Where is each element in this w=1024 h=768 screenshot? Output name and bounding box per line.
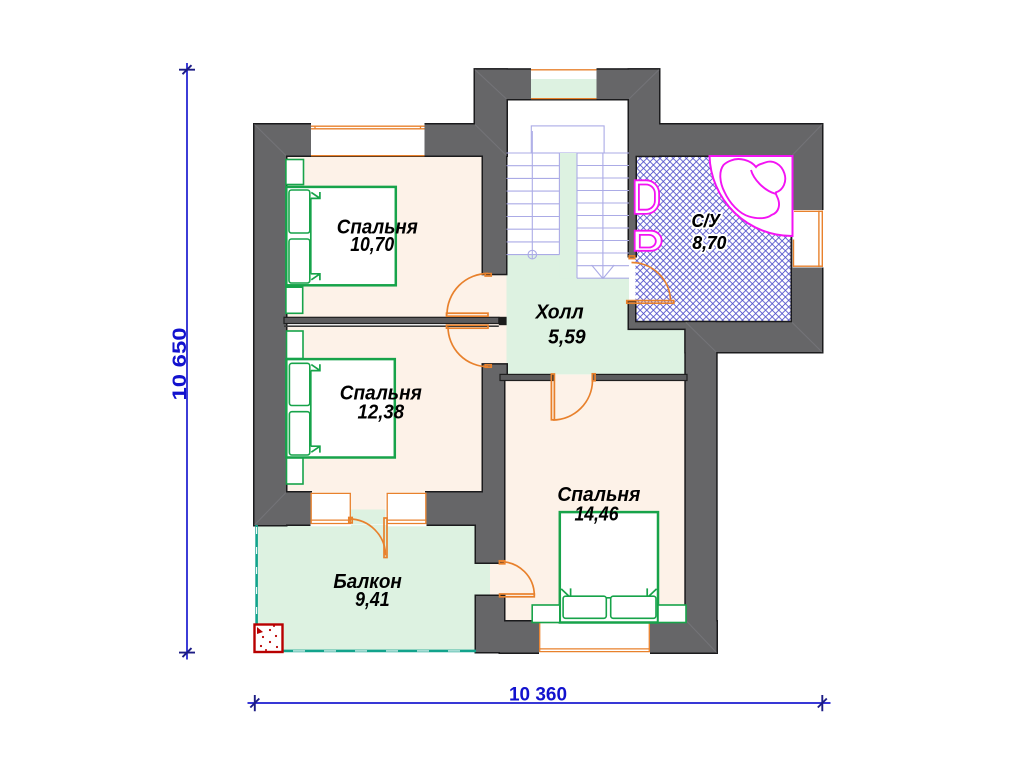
svg-text:10 360: 10 360	[509, 685, 567, 706]
svg-text:10,70: 10,70	[350, 233, 395, 256]
svg-text:14,46: 14,46	[575, 502, 620, 525]
svg-text:8,70: 8,70	[692, 232, 727, 253]
svg-text:12,38: 12,38	[358, 400, 405, 423]
svg-text:Холл: Холл	[535, 300, 584, 323]
svg-text:5,59: 5,59	[548, 326, 586, 349]
svg-text:9,41: 9,41	[355, 588, 390, 611]
svg-text:С/У: С/У	[691, 210, 721, 231]
svg-text:10 650: 10 650	[170, 328, 191, 401]
